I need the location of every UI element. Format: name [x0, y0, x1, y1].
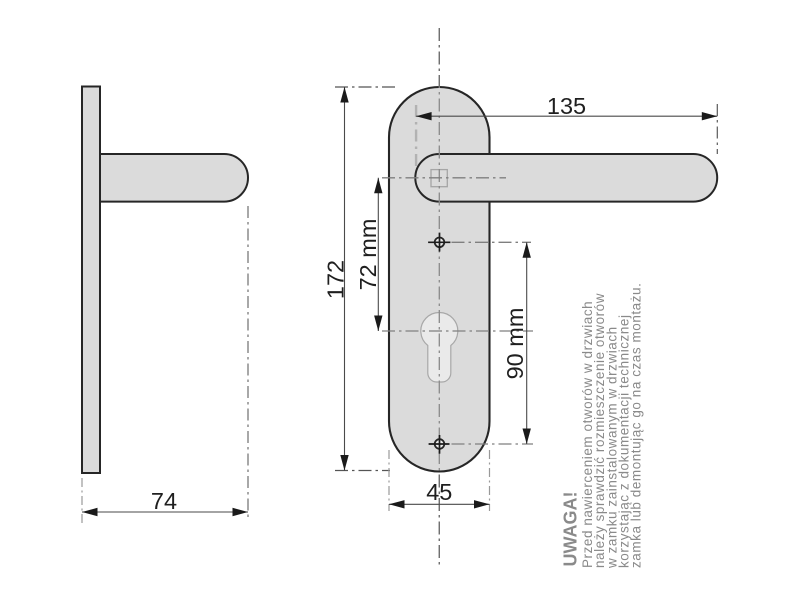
svg-text:90 mm: 90 mm — [502, 308, 528, 380]
svg-text:74: 74 — [151, 488, 177, 514]
svg-text:172: 172 — [322, 260, 348, 299]
svg-text:135: 135 — [547, 93, 586, 119]
svg-text:UWAGA!: UWAGA! — [560, 492, 580, 567]
svg-text:zamka lub demontując go na cza: zamka lub demontując go na czas montażu. — [629, 283, 644, 568]
svg-text:45: 45 — [426, 479, 452, 505]
svg-text:72 mm: 72 mm — [355, 219, 381, 291]
